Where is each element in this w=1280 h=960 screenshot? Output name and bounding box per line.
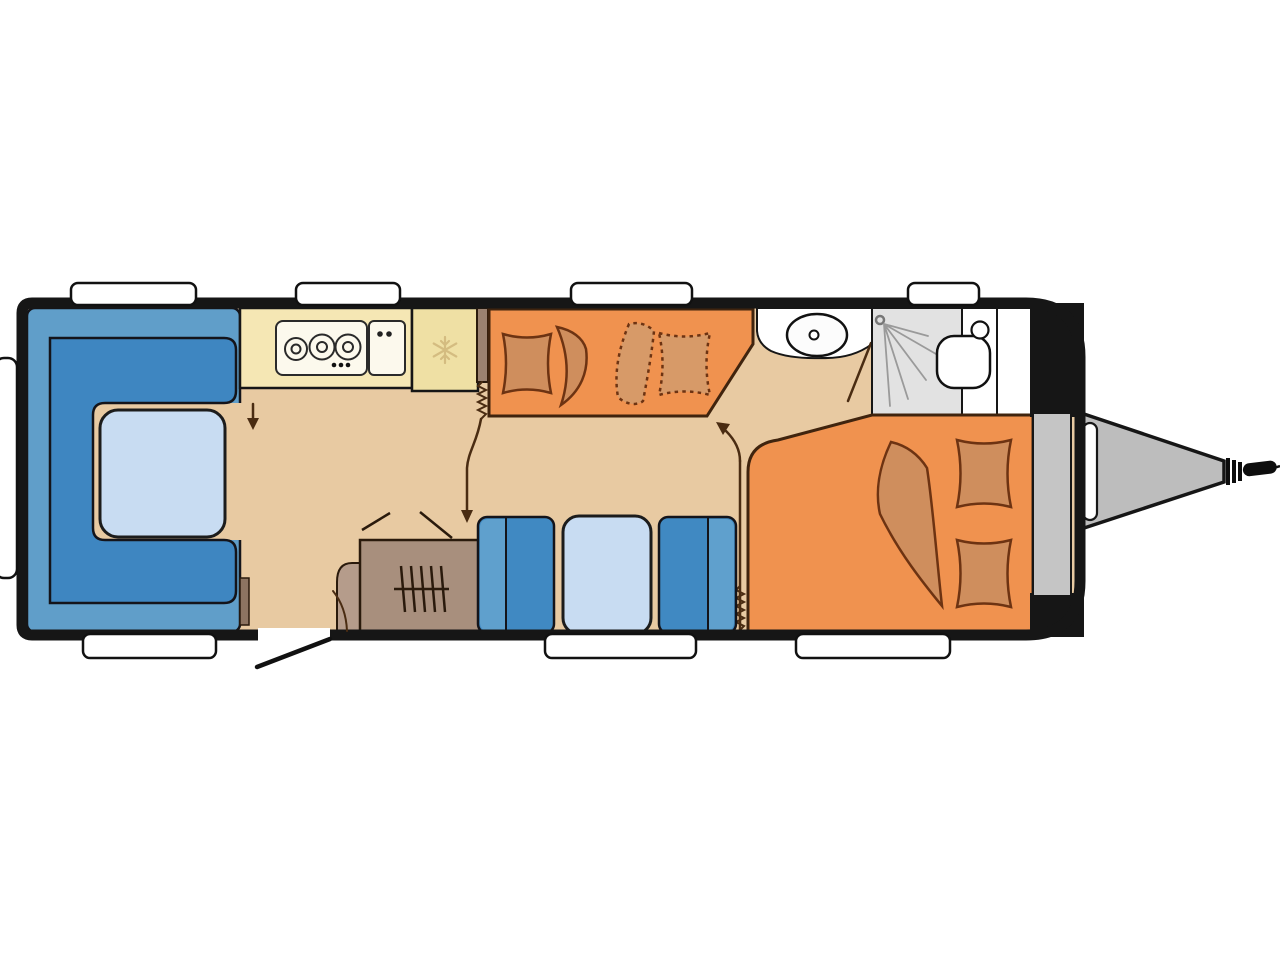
kitchen-partition bbox=[477, 308, 488, 382]
front-lounge bbox=[27, 308, 259, 632]
toilet-flush-button bbox=[972, 322, 989, 339]
pillow bbox=[503, 334, 551, 393]
wardrobe-box bbox=[360, 540, 480, 633]
dinette-table bbox=[563, 516, 651, 634]
coupling-ribs bbox=[1226, 458, 1242, 485]
window-bottom-dinette bbox=[545, 634, 696, 658]
caravan-floor-plan bbox=[0, 0, 1280, 960]
seat-right-backrest bbox=[708, 519, 734, 631]
middle-dinette bbox=[478, 516, 736, 634]
coupling-handle bbox=[1242, 460, 1277, 477]
door-swing-icon bbox=[257, 639, 330, 667]
wardrobe-extension bbox=[337, 563, 360, 633]
window-front-panorama bbox=[0, 358, 17, 578]
window-top-kitchen bbox=[296, 283, 400, 305]
end-panel bbox=[240, 578, 249, 625]
gas-locker-strip bbox=[1033, 413, 1071, 596]
pillow-top bbox=[957, 440, 1011, 507]
seat-left-backrest bbox=[480, 519, 506, 631]
drawbar bbox=[1075, 411, 1280, 531]
window-top-bunks bbox=[571, 283, 692, 305]
door-opening bbox=[258, 628, 330, 641]
window-top-lounge bbox=[71, 283, 196, 305]
pillow-dashed bbox=[659, 333, 710, 395]
rear-bed bbox=[716, 415, 1033, 633]
pillow-bottom bbox=[957, 540, 1011, 607]
floor-plan-canvas bbox=[0, 0, 1280, 960]
window-bottom-bed bbox=[796, 634, 950, 658]
hob-knob-dots bbox=[332, 363, 351, 368]
sink-panel bbox=[369, 321, 405, 375]
window-bottom-lounge bbox=[83, 634, 216, 658]
basin-drain bbox=[810, 331, 819, 340]
lounge-table bbox=[100, 410, 225, 537]
toilet-icon bbox=[937, 336, 990, 388]
window-top-washroom bbox=[908, 283, 979, 305]
bunk-beds bbox=[489, 309, 753, 416]
